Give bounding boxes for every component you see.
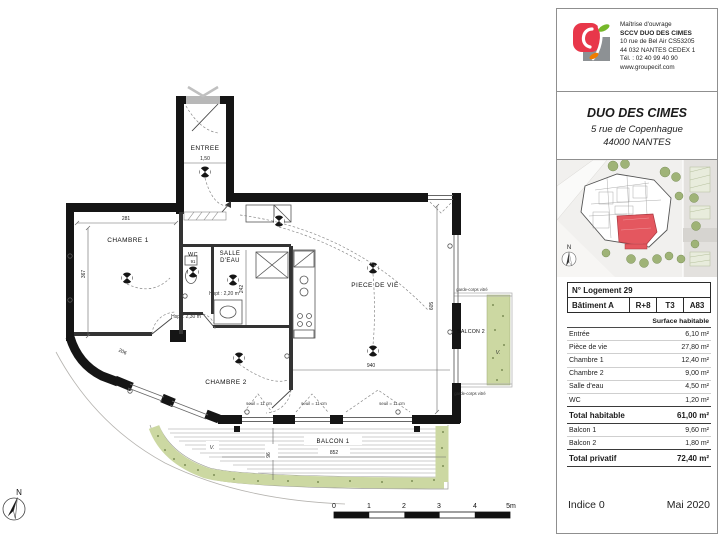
dim-corridor: 1,50 xyxy=(200,156,210,162)
dim-ch1-width: 281 xyxy=(122,216,131,222)
lot-floor: R+8 xyxy=(629,298,656,312)
title-block-panel: Maîtrise d'ouvrage SCCV DUO DES CIMES 10… xyxy=(556,8,718,534)
owner-address1: 10 rue de Bel Air CS53205 xyxy=(620,38,695,47)
annot-planter-2: V. xyxy=(496,350,501,356)
owner-heading: Maîtrise d'ouvrage xyxy=(620,21,695,30)
dim-living-height: 605 xyxy=(429,302,435,311)
label-entree: ENTREE xyxy=(191,145,220,152)
lot-type: T3 xyxy=(656,298,683,312)
annot-garde-corps-2: garde-corps vitré xyxy=(454,391,486,396)
surface-row: Chambre 1 12,40 m² xyxy=(567,354,711,367)
project-name: DUO DES CIMES xyxy=(561,106,713,120)
dim-ch1-height: 367 xyxy=(81,270,87,279)
label-salle-deau-2: D'EAU xyxy=(220,258,240,264)
svg-text:1: 1 xyxy=(367,503,371,510)
owner-address: Maîtrise d'ouvrage SCCV DUO DES CIMES 10… xyxy=(620,19,695,73)
compass: N xyxy=(3,488,25,520)
issue-date: Mai 2020 xyxy=(667,499,710,511)
fixtures xyxy=(185,205,315,338)
svg-text:2: 2 xyxy=(402,503,406,510)
project-block: DUO DES CIMES 5 rue de Copenhague 44000 … xyxy=(557,92,717,160)
owner-phone: Tél. : 02 40 99 40 90 xyxy=(620,55,695,64)
label-piece-de-vie: PIECE DE VIE xyxy=(351,282,399,289)
total-privatif-row: Total privatif 72,40 m² xyxy=(567,449,711,467)
annot-hsp-ch2: Hspt : 2,30 m xyxy=(171,314,201,320)
lot-title: N° Logement 29 xyxy=(567,282,711,298)
annot-seuil-1: seuil = 11 cm xyxy=(246,401,272,406)
lot-summary-row: Bâtiment A R+8 T3 A83 xyxy=(567,298,711,313)
svg-text:4: 4 xyxy=(473,503,477,510)
dim-balcon1-width: 852 xyxy=(330,450,339,456)
owner-name: SCCV DUO DES CIMES xyxy=(620,30,695,39)
surface-row: Salle d'eau 4,50 m² xyxy=(567,381,711,394)
compass-north-label: N xyxy=(16,488,22,497)
owner-website[interactable]: www.groupecif.com xyxy=(620,64,695,73)
annot-planter-1: V. xyxy=(210,445,215,451)
surface-row: Pièce de vie 27,80 m² xyxy=(567,341,711,354)
dim-sde-height: 242 xyxy=(239,285,245,294)
surface-header: Surface habitable xyxy=(567,313,711,328)
surface-row: Chambre 2 9,00 m² xyxy=(567,368,711,381)
dim-curve: 206 xyxy=(117,348,127,357)
balcony-row: Balcon 2 1,80 m² xyxy=(567,437,711,449)
label-balcon1: BALCON 1 xyxy=(317,439,350,445)
floor-plan-drawing: ENTREE CHAMBRE 1 CHAMBRE 2 SALLE D'EAU W… xyxy=(0,0,557,540)
balcony-row: Balcon 1 9,60 m² xyxy=(567,424,711,437)
dim-living-width: 940 xyxy=(367,363,376,369)
plan-annotations: Hspt : 2,20 m Hspt : 2,30 m seuil = 11 c… xyxy=(171,287,500,451)
panel-footer: Indice 0 Mai 2020 xyxy=(568,499,710,511)
site-plan-thumbnail: N xyxy=(557,160,717,277)
annot-seuil-2: seuil = 11 cm xyxy=(301,401,327,406)
label-salle-deau-1: SALLE xyxy=(220,251,241,257)
label-wc: WC xyxy=(188,252,198,258)
label-chambre2: CHAMBRE 2 xyxy=(205,379,247,386)
cif-logo xyxy=(571,19,613,65)
dim-wc-width: 91 xyxy=(191,259,196,264)
surface-row: WC 1,20 m² xyxy=(567,394,711,406)
entry-chevron xyxy=(188,87,218,96)
annot-seuil-3: seuil = 11 cm xyxy=(379,401,405,406)
revision-index: Indice 0 xyxy=(568,499,605,511)
project-address: 5 rue de Copenhague xyxy=(561,123,713,136)
annot-hsp-sde: Hspt : 2,20 m xyxy=(209,291,239,297)
label-chambre1: CHAMBRE 1 xyxy=(107,237,149,244)
svg-text:3: 3 xyxy=(437,503,441,510)
lot-building: Bâtiment A xyxy=(568,298,629,312)
total-habitable-row: Total habitable 61,00 m² xyxy=(567,406,711,424)
owner-block: Maîtrise d'ouvrage SCCV DUO DES CIMES 10… xyxy=(557,9,717,92)
dim-balcon1-depth: 96 xyxy=(266,452,272,458)
project-city: 44000 NANTES xyxy=(561,136,713,149)
svg-text:0: 0 xyxy=(332,503,336,510)
lot-table: N° Logement 29 Bâtiment A R+8 T3 A83 Sur… xyxy=(567,282,711,467)
annot-garde-corps-1: garde-corps vitré xyxy=(456,287,488,292)
svg-text:5m: 5m xyxy=(506,503,516,510)
closet-hatch xyxy=(184,212,226,220)
label-balcon2: BALCON 2 xyxy=(457,329,485,335)
scale-bar: 0 1 2 3 4 5m xyxy=(332,503,516,518)
siteplan-north-label: N xyxy=(567,245,571,251)
curved-wall xyxy=(70,337,219,419)
surface-row: Entrée 6,10 m² xyxy=(567,328,711,341)
lot-code: A83 xyxy=(683,298,710,312)
owner-address2: 44 032 NANTES CEDEX 1 xyxy=(620,47,695,56)
